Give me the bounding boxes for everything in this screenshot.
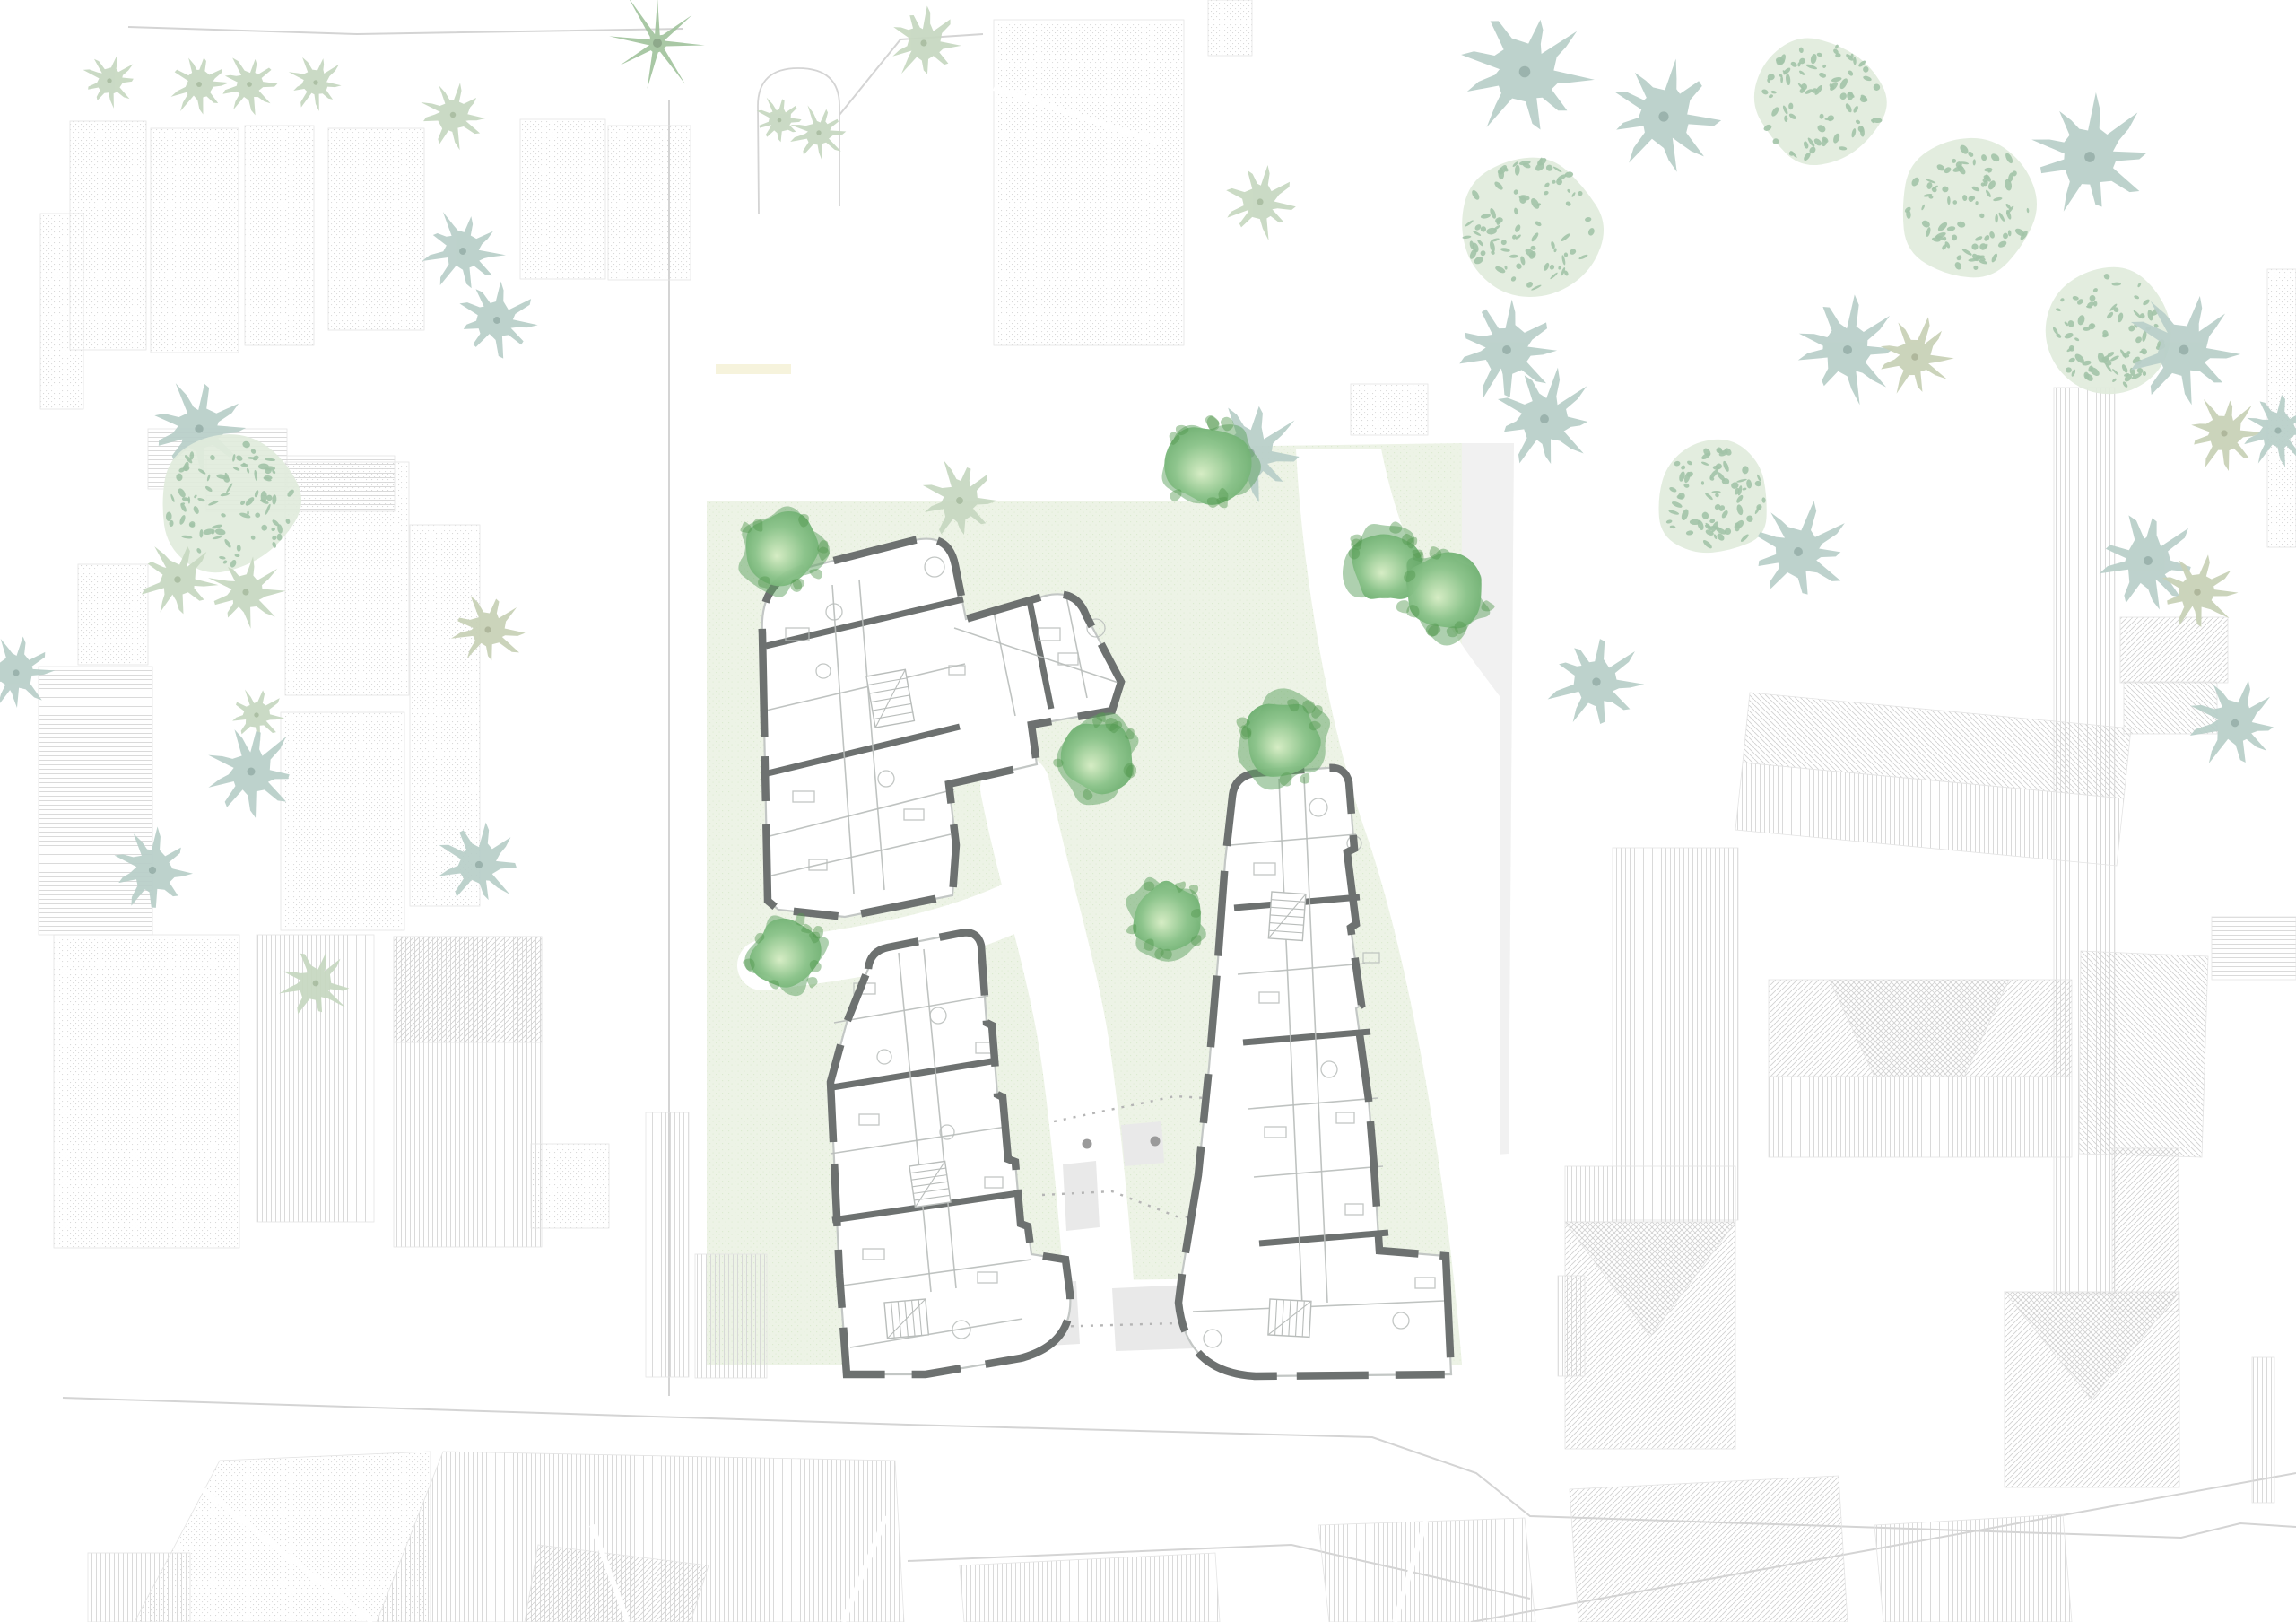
context-tree-pinwheel: [1548, 639, 1645, 724]
context-building: [2079, 951, 2208, 1157]
stair-icon: [884, 1299, 928, 1339]
context-building: [1565, 1166, 1735, 1222]
context-tree-pinwheel: [83, 56, 134, 109]
context-building: [40, 214, 83, 409]
context-building: [695, 1254, 767, 1378]
context-building: [2252, 1357, 2274, 1503]
context-building: [281, 712, 404, 930]
context-building: [78, 564, 148, 665]
context-tree-pinwheel: [289, 57, 342, 111]
context-building: [646, 1112, 689, 1377]
context-building: [608, 126, 691, 280]
street-edge-line: [128, 27, 683, 34]
context-tree-speckled: [1754, 39, 1887, 165]
context-building: [994, 20, 1184, 345]
curb-strip: [716, 364, 791, 374]
context-building: [1769, 1077, 2072, 1157]
context-building: [2112, 1148, 2179, 1312]
context-building: [2120, 617, 2228, 683]
context-building: [960, 1553, 1220, 1622]
context-tree-pinwheel: [757, 98, 802, 143]
stair-icon: [909, 1161, 951, 1207]
context-tree-pinwheel: [2191, 399, 2262, 471]
context-tree-pinwheel: [1226, 165, 1296, 240]
context-building: [1318, 1518, 1535, 1622]
context-tree-speckled: [1462, 156, 1604, 297]
context-building: [1570, 1476, 1848, 1622]
context-building: [151, 128, 239, 353]
context-building: [54, 935, 239, 1248]
stair-icon: [1268, 892, 1306, 941]
context-building: [1558, 1276, 1585, 1376]
site-plan-canvas: [0, 0, 2296, 1622]
planting-dot: [1151, 1137, 1161, 1147]
site-plan: Architectural site plan — ground floor p…: [0, 0, 2296, 1622]
context-building: [520, 119, 605, 279]
stair-icon: [866, 669, 914, 728]
context-tree-pinwheel: [222, 57, 277, 115]
planting-dot: [1083, 1139, 1092, 1149]
context-building: [135, 1452, 430, 1622]
context-tree-pinwheel: [1461, 20, 1595, 130]
context-tree-pinwheel: [1459, 300, 1557, 398]
context-tree-pinwheel: [208, 729, 289, 818]
context-building: [1208, 0, 1252, 56]
shadow-patch: [1063, 1161, 1100, 1231]
context-building: [1874, 1514, 2072, 1622]
context-building: [1351, 384, 1428, 435]
context-tree-pinwheel: [421, 83, 485, 150]
context-tree-pinwheel: [1798, 294, 1894, 405]
context-tree-speckled: [1659, 440, 1767, 553]
context-tree-pinwheel: [790, 105, 846, 161]
context-tree-pinwheel: [422, 212, 506, 288]
context-building: [531, 1144, 609, 1228]
context-tree-pinwheel: [1758, 501, 1845, 594]
context-building: [1613, 848, 1738, 1220]
stair-icon: [1268, 1299, 1311, 1337]
context-building: [2212, 917, 2296, 980]
context-tree-pinwheel: [459, 282, 537, 359]
context-building: [394, 937, 542, 1042]
context-building: [245, 126, 314, 345]
context-tree-speckled: [1903, 138, 2037, 277]
context-tree-pinwheel: [2031, 92, 2147, 212]
context-building: [328, 128, 424, 330]
context-tree-star: [609, 0, 705, 89]
context-tree-pinwheel: [171, 57, 230, 114]
context-tree-pinwheel: [1615, 59, 1721, 172]
context-tree-pinwheel: [1881, 317, 1954, 393]
